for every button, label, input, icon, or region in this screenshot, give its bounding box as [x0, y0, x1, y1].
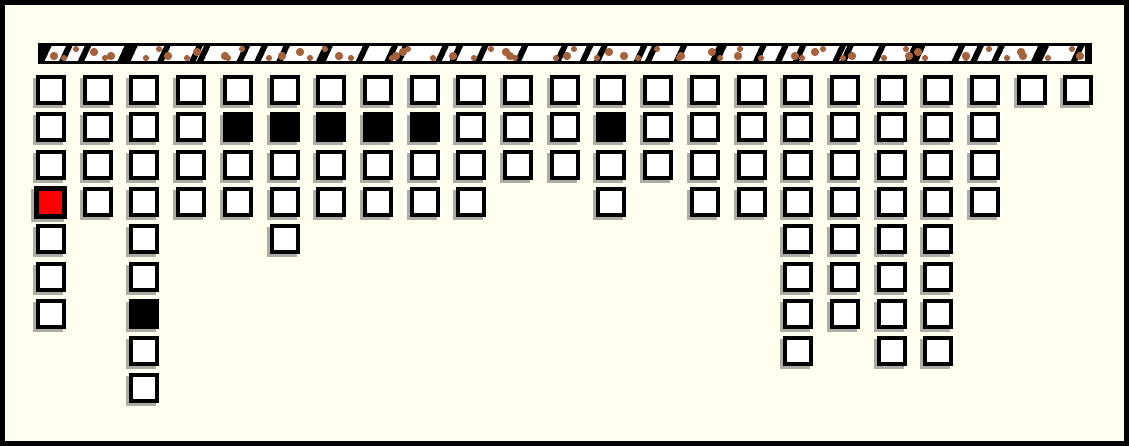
cell-col20-row2[interactable] — [923, 112, 953, 142]
cell-col14-row3[interactable] — [643, 150, 673, 180]
cell-col19-row1[interactable] — [877, 75, 907, 105]
cell-col21-row3[interactable] — [970, 150, 1000, 180]
cell-col18-row6[interactable] — [830, 262, 860, 292]
cell-col18-row4[interactable] — [830, 187, 860, 217]
cell-col5-row1[interactable] — [223, 75, 253, 105]
cell-col19-row8[interactable] — [877, 336, 907, 366]
cell-col20-row5[interactable] — [923, 224, 953, 254]
cell-col20-row4[interactable] — [923, 187, 953, 217]
cell-col19-row4[interactable] — [877, 187, 907, 217]
cell-col21-row4[interactable] — [970, 187, 1000, 217]
cell-col10-row1[interactable] — [456, 75, 486, 105]
cell-col17-row4[interactable] — [783, 187, 813, 217]
cell-col7-row4[interactable] — [316, 187, 346, 217]
cell-col3-row4[interactable] — [129, 187, 159, 217]
cell-col6-row3[interactable] — [270, 150, 300, 180]
cell-col23-row1[interactable] — [1063, 75, 1093, 105]
cell-col15-row2[interactable] — [690, 112, 720, 142]
cell-col10-row4[interactable] — [456, 187, 486, 217]
speckled-rail — [38, 43, 1092, 64]
cell-col12-row1[interactable] — [550, 75, 580, 105]
cell-col1-row5[interactable] — [36, 224, 66, 254]
cell-col14-row2[interactable] — [643, 112, 673, 142]
cell-col9-row1[interactable] — [410, 75, 440, 105]
cell-col15-row1[interactable] — [690, 75, 720, 105]
cell-col16-row2[interactable] — [737, 112, 767, 142]
cell-col13-row2[interactable] — [596, 112, 626, 142]
cell-col11-row3[interactable] — [503, 150, 533, 180]
cell-col9-row3[interactable] — [410, 150, 440, 180]
cell-col7-row2[interactable] — [316, 112, 346, 142]
cell-col16-row3[interactable] — [737, 150, 767, 180]
cell-col13-row1[interactable] — [596, 75, 626, 105]
cell-col20-row1[interactable] — [923, 75, 953, 105]
cell-col17-row7[interactable] — [783, 299, 813, 329]
cell-col5-row4[interactable] — [223, 187, 253, 217]
cell-col3-row6[interactable] — [129, 262, 159, 292]
cell-col7-row1[interactable] — [316, 75, 346, 105]
cell-col5-row2[interactable] — [223, 112, 253, 142]
cell-col3-row9[interactable] — [129, 373, 159, 403]
cell-col7-row3[interactable] — [316, 150, 346, 180]
cell-col1-row1[interactable] — [36, 75, 66, 105]
cell-col4-row3[interactable] — [176, 150, 206, 180]
cell-col10-row3[interactable] — [456, 150, 486, 180]
cell-col8-row4[interactable] — [363, 187, 393, 217]
cell-col17-row3[interactable] — [783, 150, 813, 180]
cell-col18-row7[interactable] — [830, 299, 860, 329]
cell-col4-row4[interactable] — [176, 187, 206, 217]
cell-col3-row8[interactable] — [129, 336, 159, 366]
cell-col4-row2[interactable] — [176, 112, 206, 142]
cell-col20-row8[interactable] — [923, 336, 953, 366]
cell-col1-row6[interactable] — [36, 262, 66, 292]
cell-col2-row3[interactable] — [83, 150, 113, 180]
cell-col13-row3[interactable] — [596, 150, 626, 180]
cell-col17-row1[interactable] — [783, 75, 813, 105]
cell-col5-row3[interactable] — [223, 150, 253, 180]
cell-col3-row5[interactable] — [129, 224, 159, 254]
cell-col20-row6[interactable] — [923, 262, 953, 292]
cell-col6-row1[interactable] — [270, 75, 300, 105]
cell-col6-row4[interactable] — [270, 187, 300, 217]
cell-col17-row5[interactable] — [783, 224, 813, 254]
cell-col4-row1[interactable] — [176, 75, 206, 105]
cell-col6-row5[interactable] — [270, 224, 300, 254]
cell-col3-row1[interactable] — [129, 75, 159, 105]
cell-col3-row7[interactable] — [129, 299, 159, 329]
cell-col11-row2[interactable] — [503, 112, 533, 142]
cell-col16-row1[interactable] — [737, 75, 767, 105]
cell-col18-row1[interactable] — [830, 75, 860, 105]
cell-col1-row7[interactable] — [36, 299, 66, 329]
cell-col2-row2[interactable] — [83, 112, 113, 142]
cell-col15-row3[interactable] — [690, 150, 720, 180]
cell-col22-row1[interactable] — [1017, 75, 1047, 105]
cell-col8-row2[interactable] — [363, 112, 393, 142]
cell-col3-row2[interactable] — [129, 112, 159, 142]
cell-col13-row4[interactable] — [596, 187, 626, 217]
cell-col21-row1[interactable] — [970, 75, 1000, 105]
cell-col17-row8[interactable] — [783, 336, 813, 366]
cell-col18-row5[interactable] — [830, 224, 860, 254]
cell-col6-row2[interactable] — [270, 112, 300, 142]
cell-col8-row3[interactable] — [363, 150, 393, 180]
cell-col18-row2[interactable] — [830, 112, 860, 142]
cell-col19-row3[interactable] — [877, 150, 907, 180]
cell-col2-row4[interactable] — [83, 187, 113, 217]
cell-col1-row2[interactable] — [36, 112, 66, 142]
cell-col19-row2[interactable] — [877, 112, 907, 142]
cell-col12-row2[interactable] — [550, 112, 580, 142]
cell-col1-row4[interactable] — [34, 186, 67, 219]
cell-col11-row1[interactable] — [503, 75, 533, 105]
cell-col12-row3[interactable] — [550, 150, 580, 180]
cell-col14-row1[interactable] — [643, 75, 673, 105]
cell-col19-row7[interactable] — [877, 299, 907, 329]
cell-col17-row2[interactable] — [783, 112, 813, 142]
cell-col15-row4[interactable] — [690, 187, 720, 217]
cell-col1-row3[interactable] — [36, 150, 66, 180]
cell-col16-row4[interactable] — [737, 187, 767, 217]
cell-col18-row3[interactable] — [830, 150, 860, 180]
cell-col20-row3[interactable] — [923, 150, 953, 180]
game-board-frame — [0, 0, 1129, 446]
cell-col21-row2[interactable] — [970, 112, 1000, 142]
cell-col3-row3[interactable] — [129, 150, 159, 180]
cell-col8-row1[interactable] — [363, 75, 393, 105]
cell-col19-row6[interactable] — [877, 262, 907, 292]
cell-col19-row5[interactable] — [877, 224, 907, 254]
cell-col17-row6[interactable] — [783, 262, 813, 292]
cell-col2-row1[interactable] — [83, 75, 113, 105]
cell-col10-row2[interactable] — [456, 112, 486, 142]
cell-col9-row2[interactable] — [410, 112, 440, 142]
cell-col9-row4[interactable] — [410, 187, 440, 217]
cell-col20-row7[interactable] — [923, 299, 953, 329]
